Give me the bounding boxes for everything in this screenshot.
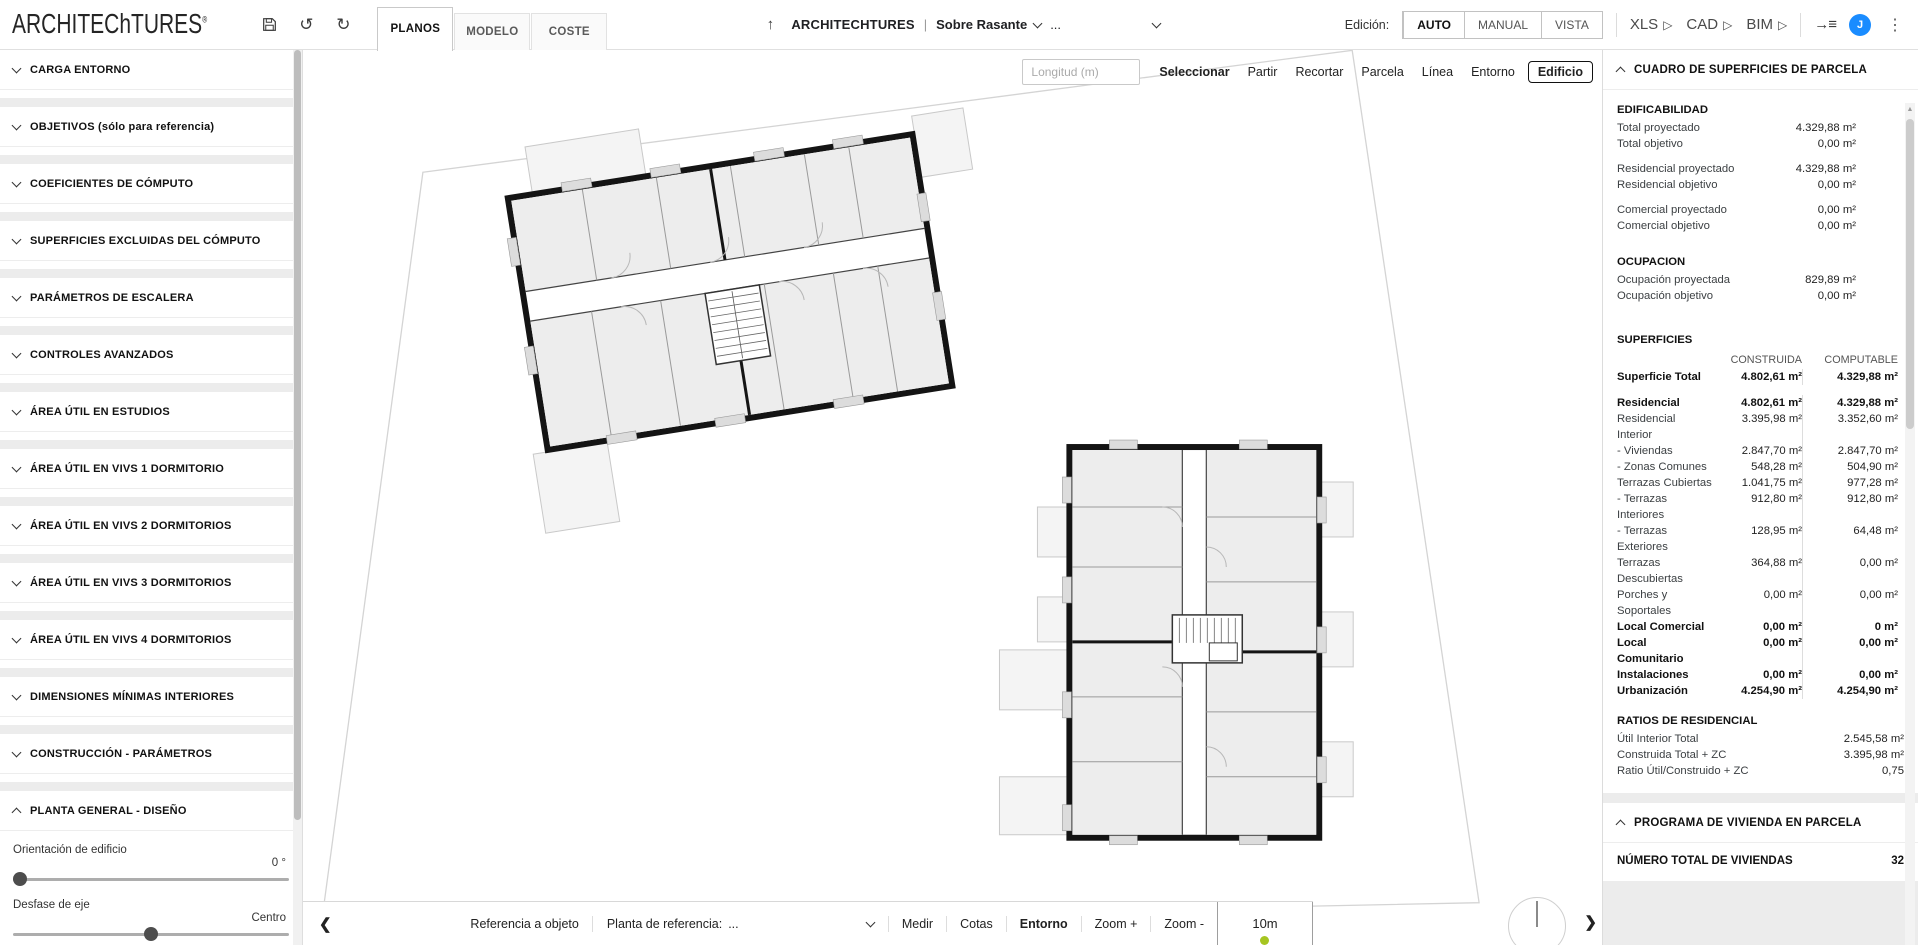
chevron-right-icon: ❯ (1584, 914, 1597, 931)
collapse-left-button[interactable]: ❮ (303, 915, 348, 933)
data-row: Ocupación proyectada 829,89 m² (1617, 272, 1904, 288)
surfaces-card-title: CUADRO DE SUPERFICIES DE PARCELA (1634, 64, 1867, 76)
sidebar-section-foot (0, 147, 302, 155)
canvas-toolbar: Seleccionar Partir Recortar Parcela Líne… (1022, 59, 1593, 85)
table-row: Porches y Soportales 0,00 m² 0,00 m² (1617, 587, 1898, 619)
sidebar-section: CARGA ENTORNO (0, 50, 302, 98)
chevron-down-icon (12, 177, 22, 187)
object-snap-toggle[interactable]: Referencia a objeto (457, 917, 591, 931)
edition-mode-button[interactable]: VISTA (1541, 12, 1602, 38)
chevron-down-icon (12, 120, 22, 130)
sublevel-dropdown-value: ... (1050, 17, 1061, 32)
orientation-value: 0 ° (13, 857, 289, 869)
patio-outline (999, 650, 1069, 710)
row-label: Local Comercial (1617, 619, 1712, 635)
reference-floor-label: Planta de referencia: (607, 917, 722, 931)
redo-button[interactable]: ↻ (331, 13, 355, 37)
row-label: Construida Total + ZC (1617, 747, 1726, 763)
row-label: Residencial objetivo (1617, 177, 1717, 193)
canvas-tool-label: Línea (1422, 65, 1453, 79)
registered-mark: ® (202, 15, 207, 25)
data-row: Residencial objetivo 0,00 m² (1617, 177, 1904, 193)
row-computable-value: 912,80 m² (1802, 491, 1898, 523)
row-computable-value: 2.847,70 m² (1802, 443, 1898, 459)
stair-core (1172, 615, 1242, 663)
row-value: 0,00 m² (1818, 202, 1904, 218)
terrace-outline (1037, 597, 1069, 642)
chevron-down-icon (12, 747, 22, 757)
sidebar-section-header[interactable]: SUPERFICIES EXCLUIDAS DEL CÓMPUTO (0, 221, 302, 261)
sidebar-section-foot (0, 90, 302, 98)
measure-button[interactable]: Medir (889, 917, 946, 931)
terrace-outline (1037, 507, 1069, 557)
row-constructed-value: 0,00 m² (1712, 635, 1802, 667)
column-header-computable: COMPUTABLE (1802, 354, 1898, 366)
canvas-tool-button[interactable]: Entorno (1462, 61, 1524, 83)
surfaces-card-header[interactable]: CUADRO DE SUPERFICIES DE PARCELA (1603, 50, 1918, 90)
sidebar-section: OBJETIVOS (sólo para referencia) (0, 107, 302, 155)
superficies-title: SUPERFICIES (1617, 334, 1904, 346)
sidebar-section-header[interactable]: ÁREA ÚTIL EN VIVS 4 DORMITORIOS (0, 620, 302, 660)
patio-outline (999, 777, 1069, 835)
row-label: Porches y Soportales (1617, 587, 1712, 619)
sidebar-section-foot (0, 318, 302, 326)
zoom-out-button[interactable]: Zoom - (1151, 917, 1217, 931)
arrow-right-icon: → (1814, 16, 1828, 33)
building-plan-b[interactable] (999, 440, 1353, 845)
environment-toggle[interactable]: Entorno (1007, 917, 1081, 931)
row-label: Urbanización (1617, 683, 1712, 699)
canvas-tool-button[interactable]: Edificio (1528, 61, 1593, 83)
chevron-up-icon (1616, 66, 1626, 76)
ratios-rows: Útil Interior Total 2.545,58 m² Construi… (1617, 731, 1904, 779)
sidebar-section-label: OBJETIVOS (sólo para referencia) (30, 121, 214, 133)
divider (1616, 13, 1617, 37)
stair-core (705, 285, 771, 365)
chevron-down-icon (12, 633, 22, 643)
row-label: Ratio Útil/Construido + ZC (1617, 763, 1749, 779)
sidebar-section: ÁREA ÚTIL EN VIVS 3 DORMITORIOS (0, 563, 302, 611)
row-label: Instalaciones (1617, 667, 1712, 683)
sidebar-section: ÁREA ÚTIL EN ESTUDIOS (0, 392, 302, 440)
chevron-down-icon (12, 405, 22, 415)
sidebar-section-label: CONSTRUCCIÓN - PARÁMETROS (30, 748, 212, 760)
canvas-tool-button[interactable]: Línea (1413, 61, 1462, 83)
logo-area: ARCHITEChTURES® ↺ ↻ (0, 10, 365, 39)
data-row: Útil Interior Total 2.545,58 m² (1617, 731, 1904, 747)
table-row: Local Comercial 0,00 m² 0 m² (1617, 619, 1898, 635)
top-bar: ARCHITEChTURES® ↺ ↻ PLANOS MODELO COSTE … (0, 0, 1918, 50)
sidebar-section-header[interactable]: ÁREA ÚTIL EN ESTUDIOS (0, 392, 302, 432)
kebab-icon: ⋮ (1887, 17, 1903, 34)
sidebar-section-header[interactable]: CONTROLES AVANZADOS (0, 335, 302, 375)
sidebar-section-header[interactable]: PLANTA GENERAL - DISEÑO (0, 791, 302, 831)
sidebar-section-header[interactable]: COEFICIENTES DE CÓMPUTO (0, 164, 302, 204)
row-constructed-value: 1.041,75 m² (1712, 475, 1802, 491)
row-label: Total proyectado (1617, 120, 1700, 136)
orientation-control: Orientación de edificio 0 ° (13, 844, 289, 887)
data-row: Total objetivo 0,00 m² (1617, 136, 1904, 152)
main-area: CARGA ENTORNO OBJETIVOS (sólo para refer… (0, 50, 1918, 945)
slider-handle[interactable] (13, 872, 27, 886)
length-input[interactable] (1022, 59, 1140, 85)
slider-handle[interactable] (144, 927, 158, 941)
ocupacion-rows: Ocupación proyectada 829,89 m² Ocupación… (1617, 272, 1904, 304)
data-row: Residencial proyectado 4.329,88 m² (1617, 161, 1904, 177)
row-label: Residencial proyectado (1617, 161, 1734, 177)
chevron-down-icon (12, 576, 22, 586)
sidebar-section: PARÁMETROS DE ESCALERA (0, 278, 302, 326)
row-value: 0,00 m² (1818, 288, 1904, 304)
export-button[interactable]: XLS ▷ (1630, 16, 1673, 33)
data-row: Ratio Útil/Construido + ZC 0,75 (1617, 763, 1904, 779)
total-dwellings-row: NÚMERO TOTAL DE VIVIENDAS 32 (1603, 843, 1918, 881)
table-row: Local Comunitario 0,00 m² 0,00 m² (1617, 635, 1898, 667)
chevron-down-icon (1152, 18, 1162, 28)
sidebar-section-label: ÁREA ÚTIL EN VIVS 2 DORMITORIOS (30, 520, 232, 532)
chevron-up-icon (1616, 819, 1626, 829)
row-constructed-value: 548,28 m² (1712, 459, 1802, 475)
up-arrow-icon: ↑ (767, 16, 775, 33)
list-icon: ≡ (1828, 16, 1836, 33)
row-value: 0,00 m² (1818, 177, 1904, 193)
sidebar-section-label: ÁREA ÚTIL EN VIVS 1 DORMITORIO (30, 463, 224, 475)
row-label: - Viviendas (1617, 443, 1712, 459)
edition-mode-label: MANUAL (1478, 18, 1528, 32)
canvas-tool-label: Entorno (1471, 65, 1515, 79)
row-value: 3.395,98 m² (1844, 747, 1904, 763)
sidebar-section-foot (0, 660, 302, 668)
user-avatar[interactable]: J (1849, 14, 1871, 36)
tab-label: MODELO (466, 26, 518, 38)
scrollbar-thumb[interactable] (1906, 119, 1914, 429)
sidebar-section: DIMENSIONES MÍNIMAS INTERIORES (0, 677, 302, 725)
redo-icon: ↻ (336, 15, 350, 35)
export-button-label: BIM (1746, 16, 1773, 33)
row-value: 4.329,88 m² (1796, 161, 1904, 177)
row-constructed-value: 2.847,70 m² (1712, 443, 1802, 459)
export-buttons: XLS ▷ CAD ▷ BIM ▷ (1630, 16, 1787, 33)
program-card-title: PROGRAMA DE VIVIENDA EN PARCELA (1634, 817, 1862, 829)
canvas-tool-label: Seleccionar (1159, 65, 1229, 79)
row-value: 0,75 (1882, 763, 1904, 779)
edition-label: Edición: (1345, 18, 1389, 32)
canvas-tool-label: Recortar (1295, 65, 1343, 79)
row-computable-value: 0,00 m² (1802, 667, 1898, 683)
edition-mode-switch: AUTO MANUAL VISTA (1402, 11, 1603, 39)
row-computable-value: 4.254,90 m² (1802, 683, 1898, 699)
table-row: Superficie Total 4.802,61 m² 4.329,88 m² (1617, 369, 1898, 385)
save-icon (262, 17, 277, 32)
sidebar-section-foot (0, 774, 302, 782)
row-computable-value: 3.352,60 m² (1802, 411, 1898, 443)
level-dropdown-value: Sobre Rasante (936, 17, 1027, 32)
export-button[interactable]: BIM ▷ (1746, 16, 1787, 33)
zoom-in-button[interactable]: Zoom + (1082, 917, 1151, 931)
row-constructed-value: 128,95 m² (1712, 523, 1802, 555)
row-constructed-value: 364,88 m² (1712, 555, 1802, 587)
overflow-menu-button[interactable]: ⋮ (1884, 15, 1906, 35)
orientation-slider[interactable] (13, 871, 289, 887)
drawing-canvas[interactable]: Seleccionar Partir Recortar Parcela Líne… (302, 50, 1602, 945)
reference-floor-value: ... (728, 917, 738, 931)
row-label: - Zonas Comunes (1617, 459, 1712, 475)
edition-mode-label: AUTO (1417, 18, 1451, 32)
row-value: 4.329,88 m² (1796, 120, 1904, 136)
total-dwellings-label: NÚMERO TOTAL DE VIVIENDAS (1617, 855, 1793, 867)
project-name: ARCHITECHTURES (791, 17, 914, 32)
sidebar-section-label: ÁREA ÚTIL EN ESTUDIOS (30, 406, 170, 418)
chevron-down-icon (12, 348, 22, 358)
program-card-header[interactable]: PROGRAMA DE VIVIENDA EN PARCELA (1603, 803, 1918, 843)
project-breadcrumb: ↑ ARCHITECHTURES | Sobre Rasante ... (758, 13, 1160, 37)
sidebar-section-header[interactable]: ÁREA ÚTIL EN VIVS 1 DORMITORIO (0, 449, 302, 489)
sidebar-section-header[interactable]: CARGA ENTORNO (0, 50, 302, 90)
sidebar-section-body: Orientación de edificio 0 ° Desfase de e… (0, 831, 302, 945)
row-label: Total objetivo (1617, 136, 1683, 152)
row-constructed-value: 4.802,61 m² (1712, 395, 1802, 411)
sidebar-section-header[interactable]: OBJETIVOS (sólo para referencia) (0, 107, 302, 147)
sidebar-section-expanded: PLANTA GENERAL - DISEÑO Orientación de e… (0, 791, 302, 945)
row-value: 829,89 m² (1805, 272, 1904, 288)
sidebar-section-label: ÁREA ÚTIL EN VIVS 4 DORMITORIOS (30, 634, 232, 646)
row-value: 0,00 m² (1818, 218, 1904, 234)
row-constructed-value: 4.254,90 m² (1712, 683, 1802, 699)
building-plan-a[interactable] (486, 78, 1019, 533)
canvas-bottom-bar: ❮ Referencia a objeto Planta de referenc… (303, 901, 1313, 945)
row-label: Comercial objetivo (1617, 218, 1710, 234)
row-label: Residencial Interior (1617, 411, 1712, 443)
export-button-label: CAD (1686, 16, 1718, 33)
collapse-right-button[interactable]: ❯ (1584, 913, 1597, 931)
axis-offset-label: Desfase de eje (13, 899, 289, 911)
table-row: Instalaciones 0,00 m² 0,00 m² (1617, 667, 1898, 683)
data-row: Total proyectado 4.329,88 m² (1617, 120, 1904, 136)
row-computable-value: 504,90 m² (1802, 459, 1898, 475)
bottom-bar-group: Referencia a objeto Planta de referencia… (457, 902, 1313, 945)
sidebar-section-foot (0, 546, 302, 554)
data-row: Ocupación objetivo 0,00 m² (1617, 288, 1904, 304)
tab-label: PLANOS (390, 23, 440, 35)
axis-offset-value: Centro (13, 912, 289, 924)
row-label: Útil Interior Total (1617, 731, 1698, 747)
sidebar-section-label: CONTROLES AVANZADOS (30, 349, 174, 361)
sidebar-section-label: DIMENSIONES MÍNIMAS INTERIORES (30, 691, 234, 703)
chevron-down-icon (12, 234, 22, 244)
undo-button[interactable]: ↺ (294, 13, 318, 37)
undo-icon: ↺ (299, 15, 313, 35)
row-label: - Terrazas Exteriores (1617, 523, 1712, 555)
scale-dot (1260, 936, 1269, 945)
row-label: - Terrazas Interiores (1617, 491, 1712, 523)
breadcrumb-separator: | (924, 17, 927, 32)
scale-value: 10m (1252, 916, 1277, 931)
sidebar-section-header[interactable]: ÁREA ÚTIL EN VIVS 2 DORMITORIOS (0, 506, 302, 546)
sidebar-section-foot (0, 204, 302, 212)
scale-indicator: 10m (1217, 902, 1313, 945)
data-row: Construida Total + ZC 3.395,98 m² (1617, 747, 1904, 763)
data-row: Comercial objetivo 0,00 m² (1617, 218, 1904, 234)
sidebar-section-label: PLANTA GENERAL - DISEÑO (30, 805, 187, 817)
terrace-outline (533, 442, 620, 533)
edition-mode-button[interactable]: AUTO (1403, 12, 1464, 38)
program-card: PROGRAMA DE VIVIENDA EN PARCELA NÚMERO T… (1603, 803, 1918, 881)
topbar-right-group: Edición: AUTO MANUAL VISTA XLS ▷ CAD ▷ (1345, 11, 1918, 39)
orientation-label: Orientación de edificio (13, 844, 289, 856)
sidebar-section: COEFICIENTES DE CÓMPUTO (0, 164, 302, 212)
row-computable-value: 4.329,88 m² (1802, 369, 1898, 385)
parameters-sidebar: CARGA ENTORNO OBJETIVOS (sólo para refer… (0, 50, 302, 945)
axis-offset-slider[interactable] (13, 926, 289, 942)
row-value: 2.545,58 m² (1844, 731, 1904, 747)
app-logo: ARCHITEChTURES® (12, 8, 207, 40)
row-label: Residencial (1617, 395, 1712, 411)
sidebar-section: ÁREA ÚTIL EN VIVS 4 DORMITORIOS (0, 620, 302, 668)
canvas-tool-button[interactable]: Recortar (1286, 61, 1352, 83)
row-label: Terrazas Cubiertas (1617, 475, 1712, 491)
data-row: Comercial proyectado 0,00 m² (1617, 202, 1904, 218)
compass-needle (1536, 901, 1538, 927)
export-button[interactable]: CAD ▷ (1686, 16, 1732, 33)
edition-mode-button[interactable]: MANUAL (1464, 12, 1541, 38)
ocupacion-title: OCUPACION (1617, 256, 1904, 268)
sidebar-section-label: PARÁMETROS DE ESCALERA (30, 292, 194, 304)
superficies-column-headers: CONSTRUIDA COMPUTABLE (1617, 354, 1904, 366)
play-icon: ▷ (1723, 18, 1732, 32)
table-row: - Viviendas 2.847,70 m² 2.847,70 m² (1617, 443, 1898, 459)
row-label: Superficie Total (1617, 369, 1712, 385)
row-label: Local Comunitario (1617, 635, 1712, 667)
sidebar-section-foot (0, 261, 302, 269)
surfaces-card-body: EDIFICABILIDAD Total proyectado 4.329,88… (1603, 90, 1918, 793)
sidebar-section: CONSTRUCCIÓN - PARÁMETROS (0, 734, 302, 782)
back-to-projects-button[interactable]: ↑ (758, 13, 782, 37)
row-value: 0,00 m² (1818, 136, 1904, 152)
tab[interactable]: PLANOS (377, 7, 453, 51)
dimensions-button[interactable]: Cotas (947, 917, 1006, 931)
table-row: Residencial Interior 3.395,98 m² 3.352,6… (1617, 411, 1898, 443)
sidebar-section-header[interactable]: ÁREA ÚTIL EN VIVS 3 DORMITORIOS (0, 563, 302, 603)
canvas-tool-label: Edificio (1538, 65, 1583, 79)
play-icon: ▷ (1778, 18, 1787, 32)
canvas-tools: Seleccionar Partir Recortar Parcela Líne… (1150, 61, 1593, 83)
sidebar-section: ÁREA ÚTIL EN VIVS 2 DORMITORIOS (0, 506, 302, 554)
sidebar-section-header[interactable]: PARÁMETROS DE ESCALERA (0, 278, 302, 318)
table-row: Urbanización 4.254,90 m² 4.254,90 m² (1617, 683, 1898, 699)
sidebar-section-foot (0, 489, 302, 497)
sidebar-sections: CARGA ENTORNO OBJETIVOS (sólo para refer… (0, 50, 302, 782)
row-computable-value: 0,00 m² (1802, 635, 1898, 667)
sidebar-section-label: COEFICIENTES DE CÓMPUTO (30, 178, 193, 190)
row-computable-value: 0,00 m² (1802, 555, 1898, 587)
sublevel-dropdown[interactable]: ... (1050, 17, 1160, 32)
level-dropdown[interactable]: Sobre Rasante (936, 17, 1041, 32)
row-constructed-value: 0,00 m² (1712, 667, 1802, 683)
terrace-outline (912, 108, 973, 177)
sidebar-section-foot (0, 432, 302, 440)
row-label: Terrazas Descubiertas (1617, 555, 1712, 587)
table-row: - Zonas Comunes 548,28 m² 504,90 m² (1617, 459, 1898, 475)
edificabilidad-title: EDIFICABILIDAD (1617, 104, 1904, 116)
row-computable-value: 4.329,88 m² (1802, 395, 1898, 411)
row-label: Comercial proyectado (1617, 202, 1727, 218)
column-header-construida: CONSTRUIDA (1704, 354, 1802, 366)
surfaces-card: CUADRO DE SUPERFICIES DE PARCELA EDIFICA… (1603, 50, 1918, 793)
sidebar-section-foot (0, 717, 302, 725)
canvas-tool-button[interactable]: Parcela (1352, 61, 1412, 83)
canvas-tool-button[interactable]: Seleccionar (1150, 61, 1238, 83)
row-constructed-value: 0,00 m² (1712, 587, 1802, 619)
row-computable-value: 0,00 m² (1802, 587, 1898, 619)
row-label: Ocupación proyectada (1617, 272, 1730, 288)
floor-plan-drawing (303, 50, 1602, 945)
sidebar-section-header[interactable]: DIMENSIONES MÍNIMAS INTERIORES (0, 677, 302, 717)
sidebar-section: CONTROLES AVANZADOS (0, 335, 302, 383)
sidebar-section-foot (0, 375, 302, 383)
chevron-left-icon: ❮ (319, 916, 332, 933)
row-computable-value: 0 m² (1802, 619, 1898, 635)
panel-scrollbar[interactable]: ▲ (1905, 103, 1915, 945)
sidebar-scrollbar[interactable] (293, 50, 302, 945)
tab[interactable]: MODELO (454, 13, 530, 50)
edition-mode-label: VISTA (1555, 18, 1589, 32)
row-constructed-value: 4.802,61 m² (1712, 369, 1802, 385)
sidebar-section-label: SUPERFICIES EXCLUIDAS DEL CÓMPUTO (30, 235, 261, 247)
total-dwellings-value: 32 (1891, 855, 1904, 867)
table-row: Terrazas Descubiertas 364,88 m² 0,00 m² (1617, 555, 1898, 587)
main-tabs: PLANOS MODELO COSTE (377, 0, 608, 50)
table-row: - Terrazas Interiores 912,80 m² 912,80 m… (1617, 491, 1898, 523)
sidebar-section-header[interactable]: CONSTRUCCIÓN - PARÁMETROS (0, 734, 302, 774)
row-constructed-value: 0,00 m² (1712, 619, 1802, 635)
save-button[interactable] (257, 13, 281, 37)
row-computable-value: 64,48 m² (1802, 523, 1898, 555)
sidebar-section-label: ÁREA ÚTIL EN VIVS 3 DORMITORIOS (30, 577, 232, 589)
play-icon: ▷ (1663, 18, 1672, 32)
sidebar-section: SUPERFICIES EXCLUIDAS DEL CÓMPUTO (0, 221, 302, 269)
scrollbar-thumb[interactable] (294, 50, 301, 820)
row-computable-value: 977,28 m² (1802, 475, 1898, 491)
chevron-down-icon (12, 291, 22, 301)
canvas-tool-label: Parcela (1361, 65, 1403, 79)
collapse-panel-button[interactable]: →≡ (1814, 16, 1836, 33)
chevron-down-icon (12, 690, 22, 700)
chevron-up-icon (12, 807, 22, 817)
tab[interactable]: COSTE (531, 13, 607, 50)
superficies-table: Superficie Total 4.802,61 m² 4.329,88 m²… (1617, 369, 1904, 699)
reference-floor-dropdown[interactable]: Planta de referencia: ... (593, 917, 888, 931)
chevron-down-icon (865, 917, 875, 927)
row-constructed-value: 3.395,98 m² (1712, 411, 1802, 443)
results-panel: CUADRO DE SUPERFICIES DE PARCELA EDIFICA… (1602, 50, 1918, 945)
chevron-down-icon (12, 519, 22, 529)
chevron-down-icon (1033, 18, 1043, 28)
sidebar-section-foot (0, 603, 302, 611)
row-label: Ocupación objetivo (1617, 288, 1713, 304)
sidebar-section: ÁREA ÚTIL EN VIVS 1 DORMITORIO (0, 449, 302, 497)
export-button-label: XLS (1630, 16, 1658, 33)
divider (1800, 13, 1801, 37)
sidebar-section-label: CARGA ENTORNO (30, 64, 130, 76)
app-logo-text: ARCHITEChTURES (12, 8, 202, 39)
table-row: - Terrazas Exteriores 128,95 m² 64,48 m² (1617, 523, 1898, 555)
canvas-tool-label: Partir (1248, 65, 1278, 79)
table-row: Residencial 4.802,61 m² 4.329,88 m² (1617, 395, 1898, 411)
ratios-title: RATIOS DE RESIDENCIAL (1617, 715, 1904, 727)
table-row: Terrazas Cubiertas 1.041,75 m² 977,28 m² (1617, 475, 1898, 491)
canvas-tool-button[interactable]: Partir (1239, 61, 1287, 83)
chevron-down-icon (12, 63, 22, 73)
